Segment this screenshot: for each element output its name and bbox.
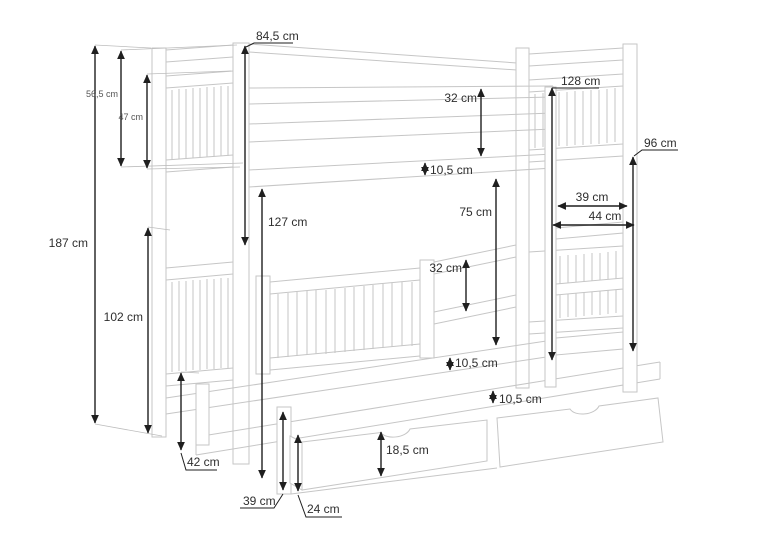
dim-label-bunk-gap: 75 cm <box>459 205 492 219</box>
bunk-bed-technical-drawing: 187 cm 56,5 cm 47 cm 84,5 cm 32 cm 10,5 … <box>0 0 768 543</box>
ladder-rail <box>545 87 556 387</box>
dim-label-ladder-depth: 44 cm <box>589 209 622 223</box>
dim-label-headboard-top: 56,5 cm <box>86 89 118 99</box>
left-front-post <box>233 43 249 464</box>
trundle-left-post <box>196 384 209 445</box>
right-front-post <box>623 44 637 392</box>
dim-label-upper-rail: 32 cm <box>444 91 477 105</box>
trundle <box>196 362 663 494</box>
drawing-canvas: 187 cm 56,5 cm 47 cm 84,5 cm 32 cm 10,5 … <box>0 0 768 543</box>
dim-label-lower-section: 102 cm <box>104 310 143 324</box>
dim-label-trundle-frame: 10,5 cm <box>499 392 542 406</box>
ladder-rung <box>556 278 623 295</box>
dim-label-ladder-height: 96 cm <box>644 136 677 150</box>
upper-bunk <box>249 86 553 187</box>
dim-label-drawer-front: 18,5 cm <box>386 443 429 457</box>
dim-label-trundle-height: 42 cm <box>187 455 220 469</box>
lower-bunk-platform <box>166 340 553 414</box>
dim-label-bed-width: 84,5 cm <box>256 29 299 43</box>
drawer-left <box>290 436 302 490</box>
dim-label-ladder-width: 39 cm <box>576 190 609 204</box>
lower-guardrail <box>256 260 434 374</box>
dim-label-lower-rail: 32 cm <box>429 261 462 275</box>
dim-label-lower-frame: 10,5 cm <box>455 356 498 370</box>
dim-label-guardrail-upper: 47 cm <box>118 112 143 122</box>
dim-label-front-post: 39 cm <box>243 494 276 508</box>
bed-wireframe <box>152 43 663 494</box>
left-rear-post <box>152 48 166 437</box>
dim-label-lower-bed-height: 127 cm <box>268 215 307 229</box>
lower-bunk-rear-rail <box>434 245 516 324</box>
dim-label-drawer-clearance: 24 cm <box>307 502 340 516</box>
upper-bunk-rear-rail <box>249 44 517 70</box>
ladder-rung <box>556 332 623 355</box>
dim-label-total-height: 187 cm <box>49 236 88 250</box>
trundle-front-post <box>277 407 291 494</box>
dim-label-upper-frame: 10,5 cm <box>430 163 473 177</box>
dim-label-upper-bed-height: 128 cm <box>561 74 600 88</box>
guardrail-left-post <box>256 276 270 374</box>
drawer-right-front <box>497 398 663 467</box>
